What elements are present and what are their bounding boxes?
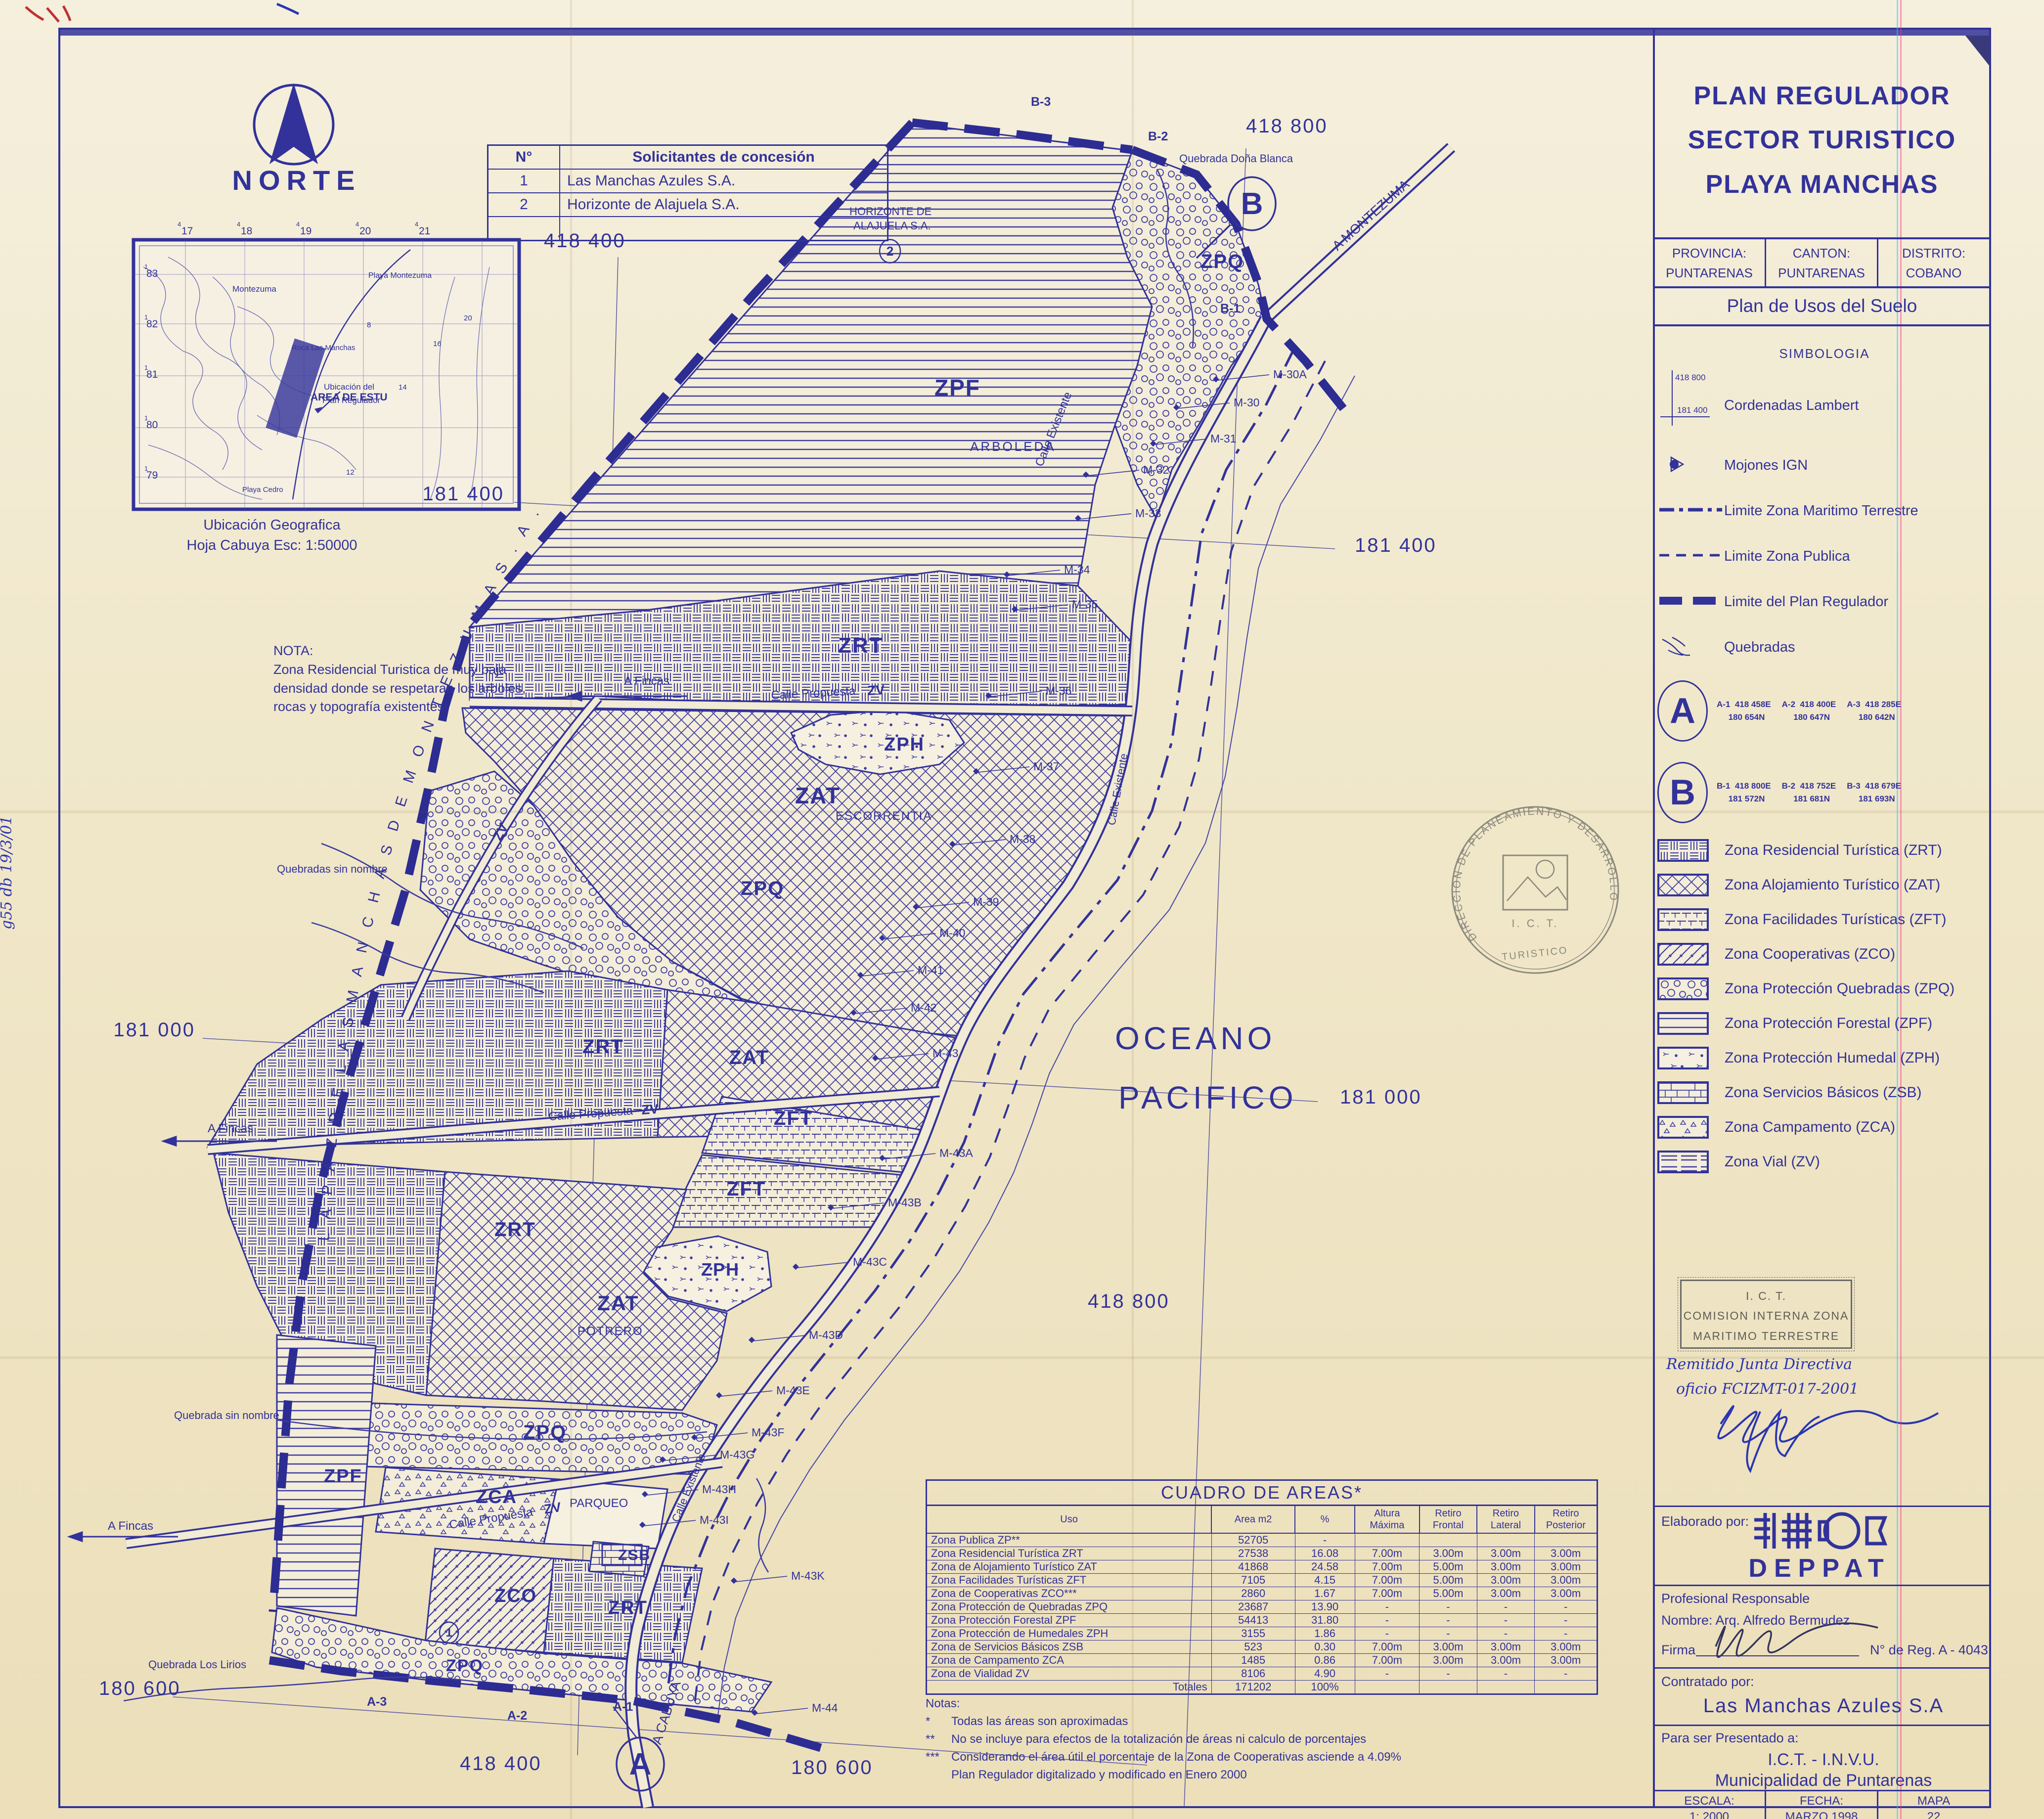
registration-number: N° de Reg. A - 4043 xyxy=(1870,1642,1988,1658)
inset-tick-sup: 4 xyxy=(296,221,300,228)
title-line2: SECTOR TURISTICO xyxy=(1661,118,1983,162)
areas-column-header: % xyxy=(1295,1506,1355,1534)
areas-cell xyxy=(1535,1681,1598,1694)
scale-date-row: ESCALA: 1: 2000 FECHA: MARZO 1998 MAPA 2… xyxy=(1654,1790,1989,1819)
legend-zone-label: Zona Cooperativas (ZCO) xyxy=(1725,946,1895,963)
dashdot-icon xyxy=(1657,499,1724,523)
escala-label: ESCALA: xyxy=(1654,1793,1765,1809)
areas-cell: 3.00m xyxy=(1420,1641,1477,1654)
margin-handwriting: g55 db 19/3/01 xyxy=(0,815,15,930)
zone-code-label: ZRT xyxy=(608,1597,648,1618)
feature-label: A Fincas xyxy=(208,1122,253,1135)
inset-top-tick: 19 xyxy=(300,225,311,237)
areas-cell: - xyxy=(1355,1614,1420,1627)
ict-stamp-line3: MARITIMO TERRESTRE xyxy=(1682,1326,1851,1346)
areas-table-title: CUADRO DE AREAS* xyxy=(927,1480,1598,1506)
legend: 418 800 181 400 Cordenadas Lambert Mojon… xyxy=(1657,368,1990,1179)
footnote: **No se incluye para efectos de la total… xyxy=(926,1730,1618,1748)
areas-table: CUADRO DE AREAS* UsoArea m2%AlturaMáxima… xyxy=(926,1479,1598,1695)
areas-cell: 3.00m xyxy=(1535,1587,1598,1600)
legend-zone-item: Zona Residencial Turística (ZRT) xyxy=(1657,833,1990,868)
legend-zone-label: Zona Protección Quebradas (ZPQ) xyxy=(1725,980,1955,997)
legend-zone-item: Zona Vial (ZV) xyxy=(1657,1145,1990,1179)
zone-pattern-swatch xyxy=(1657,1081,1709,1104)
zone-code-label: ZPH xyxy=(701,1259,740,1280)
zone-code-label: ZPF xyxy=(324,1466,362,1487)
inset-caption-line2: Hoja Cabuya Esc: 1:50000 xyxy=(163,535,381,556)
areas-cell: Zona Protección Forestal ZPF xyxy=(927,1614,1212,1627)
mojon-label: M-37 xyxy=(1033,760,1059,773)
areas-cell: - xyxy=(1535,1667,1598,1681)
areas-cell: - xyxy=(1477,1667,1535,1681)
mojon-label: M-43I xyxy=(700,1513,729,1526)
mojon-label: M-43D xyxy=(809,1329,843,1341)
legend-zone-label: Zona Protección Forestal (ZPF) xyxy=(1725,1015,1932,1032)
circled-marker-letter: A xyxy=(629,1747,652,1781)
feature-label: POTRERO xyxy=(578,1325,643,1338)
applicant-row xyxy=(488,217,888,241)
legend-zone-item: Zona Protección Forestal (ZPF) xyxy=(1657,1006,1990,1041)
areas-cell: 0.30 xyxy=(1295,1641,1355,1654)
inset-caption-line1: Ubicación Geografica xyxy=(163,515,381,535)
title-line1: PLAN REGULADOR xyxy=(1661,74,1983,118)
legend-zone-label: Zona Residencial Turística (ZRT) xyxy=(1725,842,1942,859)
zone-code-label: ZCO xyxy=(494,1586,537,1606)
areas-cell: 5.00m xyxy=(1420,1574,1477,1587)
deppat-logo-icon xyxy=(1750,1509,1894,1553)
handwritten-note-line2: oficio FCIZMT-017-2001 xyxy=(1676,1380,1859,1398)
areas-cell: 3.00m xyxy=(1420,1547,1477,1560)
legend-zone-item: Zona Campamento (ZCA) xyxy=(1657,1110,1990,1145)
boundary-point-label: A-3 xyxy=(367,1695,387,1709)
sheet-title: PLAN REGULADOR SECTOR TURISTICO PLAYA MA… xyxy=(1661,74,1983,207)
areas-cell: 41868 xyxy=(1211,1560,1295,1574)
circled-marker-letter: 2 xyxy=(887,244,893,259)
areas-cell: Zona Facilidades Turísticas ZFT xyxy=(927,1574,1212,1587)
feature-label: ARBOLEDA xyxy=(970,439,1056,454)
mojon-label: M-43B xyxy=(888,1196,922,1209)
applicants-num-header: N° xyxy=(488,145,560,170)
professional-name: Nombre: Arq. Alfredo Bermudez xyxy=(1661,1613,1850,1628)
inset-feature-label: Roca Las Manchas xyxy=(292,344,355,352)
ict-stamp-line2: COMISION INTERNA ZONA xyxy=(1682,1306,1851,1326)
areas-cell: 3.00m xyxy=(1477,1547,1535,1560)
legend-point-group-A: AA-1 418 458E 180 654NA-2 418 400E 180 6… xyxy=(1657,670,1990,752)
client-name: Las Manchas Azules S.A xyxy=(1657,1695,1990,1717)
areas-cell: - xyxy=(1355,1627,1420,1641)
mojon-icon xyxy=(1657,453,1724,478)
deppat-name: DEPPAT xyxy=(1671,1553,1968,1583)
areas-cell: 3.00m xyxy=(1420,1654,1477,1667)
svg-text:OCEANO: OCEANO xyxy=(1115,1020,1276,1056)
road-label: ZV xyxy=(543,1500,562,1517)
fecha-label: FECHA: xyxy=(1766,1793,1877,1809)
inset-feature-label: Montezuma xyxy=(232,284,276,294)
boundary-point-label: B-3 xyxy=(1031,95,1051,109)
circled-letter-B: B xyxy=(1657,762,1708,823)
mojon-label: M-43F xyxy=(752,1426,784,1439)
boundary-point-label: A-2 xyxy=(507,1709,527,1723)
inset-location-map xyxy=(133,240,519,509)
mapa-cell: MAPA 22 xyxy=(1877,1791,1989,1819)
zone-code-label: ZAT xyxy=(597,1291,639,1315)
legend-item: Limite del Plan Regulador xyxy=(1657,579,1990,624)
feature-label: Quebrada sin nombre xyxy=(174,1409,279,1421)
areas-cell: 3.00m xyxy=(1535,1641,1598,1654)
province-label: PROVINCIA: xyxy=(1654,243,1765,263)
district-cell: DISTRITO: COBANO xyxy=(1877,239,1989,286)
areas-cell xyxy=(1355,1533,1420,1547)
areas-cell: - xyxy=(1535,1600,1598,1614)
legend-zone-label: Zona Vial (ZV) xyxy=(1725,1154,1820,1170)
footnote-text: Todas las áreas son aproximadas xyxy=(951,1713,1128,1730)
legend-item-label: Mojones IGN xyxy=(1724,457,1808,474)
zone-pattern-swatch xyxy=(1657,1047,1709,1069)
point-coordinates: A-2 418 400E 180 647N xyxy=(1782,698,1836,723)
areas-cell: - xyxy=(1355,1600,1420,1614)
areas-cell xyxy=(1420,1533,1477,1547)
elaborado-label: Elaborado por: xyxy=(1661,1514,1749,1529)
mojon-label: M-40 xyxy=(939,927,965,939)
note-line: densidad donde se respetaran los arboles… xyxy=(273,679,600,698)
areas-column-header: RetiroPosterior xyxy=(1535,1506,1598,1534)
heavy-icon xyxy=(1657,590,1724,614)
ict-stamp-line1: I. C. T. xyxy=(1682,1286,1851,1306)
presentado-to-2: Municipalidad de Puntarenas xyxy=(1657,1771,1990,1790)
footnote-text: Considerando el área útil el porcentaje … xyxy=(951,1748,1401,1766)
zone-pattern-swatch xyxy=(1657,977,1709,1000)
fecha-value: MARZO 1998 xyxy=(1766,1809,1877,1819)
areas-cell: 3.00m xyxy=(1477,1641,1535,1654)
mojon-label: M-42 xyxy=(911,1001,936,1014)
legend-heading: SIMBOLOGIA xyxy=(1716,346,1933,361)
mojon-label: M-36 xyxy=(1046,684,1071,697)
divider xyxy=(1654,1585,1989,1586)
areas-cell: - xyxy=(1420,1627,1477,1641)
areas-cell: 8106 xyxy=(1211,1667,1295,1681)
grid-coordinate-label: 418 400 xyxy=(460,1753,542,1775)
feature-label: Quebrada Los Lirios xyxy=(148,1658,246,1671)
areas-cell: Zona de Servicios Básicos ZSB xyxy=(927,1641,1212,1654)
areas-cell: - xyxy=(1477,1600,1535,1614)
lambert-coords-icon: 418 800 181 400 xyxy=(1657,367,1724,444)
areas-row: Zona de Vialidad ZV81064.90---- xyxy=(927,1667,1598,1681)
areas-cell: 7105 xyxy=(1211,1574,1295,1587)
inset-top-tick: 21 xyxy=(419,225,430,237)
inset-tick-sup: 4 xyxy=(237,221,240,228)
areas-cell: - xyxy=(1295,1533,1355,1547)
zone-code-label: ZRT xyxy=(494,1219,536,1241)
inset-top-tick: 20 xyxy=(359,225,371,237)
mojon-label: M-35 xyxy=(1072,598,1098,611)
legend-zone-item: Zona Protección Quebradas (ZPQ) xyxy=(1657,972,1990,1006)
map-note: NOTA: Zona Residencial Turistica de muy … xyxy=(273,642,600,716)
inset-depth-number: 20 xyxy=(464,314,472,322)
areas-cell xyxy=(1477,1533,1535,1547)
divider xyxy=(1654,1506,1989,1507)
areas-row: Zona de Cooperativas ZCO***28601.677.00m… xyxy=(927,1587,1598,1600)
grid-coordinate-label: 181 000 xyxy=(113,1019,195,1041)
mojon-label: M-41 xyxy=(918,964,943,976)
mojon-label: M-39 xyxy=(973,895,999,908)
point-coordinates: A-3 418 285E 180 642N xyxy=(1847,698,1901,723)
areas-cell: 4.15 xyxy=(1295,1574,1355,1587)
legend-item-label: Limite del Plan Regulador xyxy=(1724,594,1888,610)
zone-code-label: ZPQ xyxy=(1200,251,1244,272)
legend-item-label: Limite Zona Maritimo Terrestre xyxy=(1724,503,1918,519)
zone-code-label: ZFT xyxy=(774,1108,813,1129)
zone-code-label: ZCA xyxy=(476,1487,517,1508)
areas-cell: Zona de Cooperativas ZCO*** xyxy=(927,1587,1212,1600)
zone-code-label: ZAT xyxy=(729,1047,769,1068)
point-coordinates: B-2 418 752E 181 681N xyxy=(1782,780,1836,805)
fecha-cell: FECHA: MARZO 1998 xyxy=(1765,1791,1877,1819)
zone-pattern-swatch xyxy=(1657,1012,1709,1035)
sheet-subtitle: Plan de Usos del Suelo xyxy=(1661,296,1983,316)
footnote-mark: *** xyxy=(926,1748,951,1766)
mojon-label: M-43 xyxy=(933,1047,958,1060)
dashed-icon xyxy=(1657,544,1724,569)
applicants-table: N° Solicitantes de concesión 1Las Mancha… xyxy=(487,144,889,241)
north-label: NORTE xyxy=(205,164,389,196)
legend-zone-item: Zona Protección Humedal (ZPH) xyxy=(1657,1041,1990,1075)
grid-coordinate-label: 181 400 xyxy=(1355,534,1437,556)
district-value: COBANO xyxy=(1878,263,1989,283)
grid-coordinate-label: 418 800 xyxy=(1088,1290,1170,1312)
feature-label: Quebradas sin nombre xyxy=(277,863,388,875)
legend-item-label: Limite Zona Publica xyxy=(1724,548,1850,565)
circled-letter-A: A xyxy=(1657,680,1708,742)
areas-cell: 2860 xyxy=(1211,1587,1295,1600)
point-coordinates: A-1 418 458E 180 654N xyxy=(1717,698,1771,723)
areas-row: Zona Protección Forestal ZPF5441331.80--… xyxy=(927,1614,1598,1627)
areas-cell xyxy=(1420,1681,1477,1694)
road-label: ZV xyxy=(867,682,885,698)
zone-code-label: ZSB xyxy=(618,1547,651,1563)
jurisdiction-row: PROVINCIA: PUNTARENAS CANTON: PUNTARENAS… xyxy=(1654,237,1989,288)
inset-tick-sup: 4 xyxy=(415,221,418,228)
areas-total-label: Totales xyxy=(927,1681,1212,1694)
areas-column-header: AlturaMáxima xyxy=(1355,1506,1420,1534)
areas-cell: 52705 xyxy=(1211,1533,1295,1547)
areas-cell: 1485 xyxy=(1211,1654,1295,1667)
footnote-mark: * xyxy=(926,1713,951,1730)
note-title: NOTA: xyxy=(273,642,600,661)
areas-cell: 3.00m xyxy=(1535,1654,1598,1667)
areas-cell: 5.00m xyxy=(1420,1560,1477,1574)
zone-parqueo xyxy=(544,1479,667,1549)
mojon-label: M-32 xyxy=(1143,463,1169,476)
legend-item: Mojones IGN xyxy=(1657,443,1990,488)
inset-caption: Ubicación Geografica Hoja Cabuya Esc: 1:… xyxy=(163,515,381,555)
areas-cell: 27538 xyxy=(1211,1547,1295,1560)
point-coordinates: B-3 418 679E 181 693N xyxy=(1847,780,1901,805)
inset-left-tick: 83 xyxy=(146,268,158,279)
footnote-text: Plan Regulador digitalizado y modificado… xyxy=(951,1766,1247,1784)
presentado-label: Para ser Presentado a: xyxy=(1661,1730,1799,1746)
footnote-text: No se incluye para efectos de la totaliz… xyxy=(951,1730,1366,1748)
areas-cell: 3.00m xyxy=(1477,1574,1535,1587)
province-value: PUNTARENAS xyxy=(1654,263,1765,283)
areas-cell: - xyxy=(1420,1667,1477,1681)
areas-cell xyxy=(1355,1681,1420,1694)
divider xyxy=(1654,1667,1989,1669)
circled-marker-letter: B xyxy=(1241,187,1263,221)
inset-feature-label: Ubicación del xyxy=(324,382,374,392)
point-coordinates: B-1 418 800E 181 572N xyxy=(1717,780,1771,805)
legend-zone-item: Zona Cooperativas (ZCO) xyxy=(1657,937,1990,972)
legend-zone-label: Zona Campamento (ZCA) xyxy=(1725,1119,1895,1136)
areas-column-header: RetiroLateral xyxy=(1477,1506,1535,1534)
areas-cell: - xyxy=(1477,1614,1535,1627)
legend-item-label: Quebradas xyxy=(1724,639,1795,656)
note-line: rocas y topografía existentes. xyxy=(273,698,600,716)
legend-zone-item: Zona Alojamiento Turístico (ZAT) xyxy=(1657,868,1990,902)
applicant-name: Las Manchas Azules S.A. xyxy=(560,169,888,193)
footnote: ***Considerando el área útil el porcenta… xyxy=(926,1748,1618,1766)
zone-code-label: ZPQ xyxy=(523,1421,567,1443)
mojon-label: M-43A xyxy=(939,1147,973,1159)
areas-cell: 16.08 xyxy=(1295,1547,1355,1560)
svg-text:418 800: 418 800 xyxy=(1675,373,1705,382)
areas-row: Zona de Campamento ZCA14850.867.00m3.00m… xyxy=(927,1654,1598,1667)
applicants-header: Solicitantes de concesión xyxy=(560,145,888,170)
mojon-label: M-30 xyxy=(1234,396,1259,409)
inset-depth-number: 8 xyxy=(367,321,371,329)
mojon-label: M-33 xyxy=(1135,507,1161,520)
inset-top-tick: 18 xyxy=(241,225,252,237)
areas-cell: 7.00m xyxy=(1355,1587,1420,1600)
inset-left-tick: 82 xyxy=(146,318,158,330)
grid-coordinate-label: 181 000 xyxy=(1340,1086,1422,1108)
divider xyxy=(1654,324,1989,326)
legend-item: Limite Zona Maritimo Terrestre xyxy=(1657,488,1990,533)
areas-cell: 4.90 xyxy=(1295,1667,1355,1681)
zone-pattern-swatch xyxy=(1657,839,1709,862)
zone-code-label: ZRT xyxy=(838,633,884,658)
mojon-label: M-43E xyxy=(776,1384,810,1397)
zone-code-label: ZPQ xyxy=(446,1656,484,1675)
applicant-name: Horizonte de Alajuela S.A. xyxy=(560,193,888,217)
areas-cell: - xyxy=(1477,1627,1535,1641)
footnotes: Notas: *Todas las áreas son aproximadas*… xyxy=(926,1695,1618,1784)
legend-zone-label: Zona Facilidades Turísticas (ZFT) xyxy=(1725,911,1946,928)
areas-cell: 3.00m xyxy=(1535,1560,1598,1574)
areas-cell: 1.86 xyxy=(1295,1627,1355,1641)
mojon-label: M-43G xyxy=(720,1448,755,1461)
areas-row: Zona de Servicios Básicos ZSB5230.307.00… xyxy=(927,1641,1598,1654)
note-line: Zona Residencial Turistica de muy baja xyxy=(273,661,600,679)
zone-code-label: ZRT xyxy=(582,1036,624,1058)
legend-item: Limite Zona Publica xyxy=(1657,533,1990,579)
areas-cell: 3155 xyxy=(1211,1627,1295,1641)
areas-cell: 7.00m xyxy=(1355,1547,1420,1560)
feature-label: Quebrada Doña Blanca xyxy=(1179,152,1293,165)
applicant-row: 2Horizonte de Alajuela S.A. xyxy=(488,193,888,217)
zone-code-label: ZPF xyxy=(934,375,980,400)
areas-total-area: 171202 xyxy=(1211,1681,1295,1694)
canton-value: PUNTARENAS xyxy=(1766,263,1877,283)
title-line3: PLAYA MANCHAS xyxy=(1661,163,1983,207)
areas-cell: 13.90 xyxy=(1295,1600,1355,1614)
scanned-plan-sheet: L A P A Z D E L A S M A N C H A S D E M … xyxy=(0,0,2044,1819)
areas-cell: - xyxy=(1420,1600,1477,1614)
inset-tick-sup: 4 xyxy=(178,221,181,228)
legend-zone-label: Zona Servicios Básicos (ZSB) xyxy=(1725,1084,1921,1101)
inset-depth-number: 14 xyxy=(399,383,407,392)
legend-zone-item: Zona Facilidades Turísticas (ZFT) xyxy=(1657,902,1990,937)
areas-cell xyxy=(1535,1533,1598,1547)
grid-coordinate-label: 418 800 xyxy=(1246,115,1328,137)
areas-cell: 24.58 xyxy=(1295,1560,1355,1574)
zone-pattern-swatch xyxy=(1657,908,1709,931)
legend-zone-label: Zona Protección Humedal (ZPH) xyxy=(1725,1050,1940,1066)
grid-coordinate-label: 180 600 xyxy=(791,1757,873,1778)
footnote-mark: ** xyxy=(926,1730,951,1748)
areas-cell: - xyxy=(1355,1667,1420,1681)
feature-label: PARQUEO xyxy=(570,1497,628,1510)
feature-label: A Fincas xyxy=(624,674,669,688)
fold-crease xyxy=(570,0,573,1819)
inset-left-tick: 80 xyxy=(146,419,158,431)
areas-total-row: Totales171202100% xyxy=(927,1681,1598,1694)
svg-text:I. C. T.: I. C. T. xyxy=(1511,917,1558,930)
areas-cell: 3.00m xyxy=(1535,1547,1598,1560)
areas-row: Zona de Alojamiento Turístico ZAT4186824… xyxy=(927,1560,1598,1574)
district-label: DISTRITO: xyxy=(1878,243,1989,263)
areas-cell: 523 xyxy=(1211,1641,1295,1654)
handwritten-note-line1: Remitido Junta Directiva xyxy=(1666,1356,1852,1373)
inset-top-tick: 17 xyxy=(181,225,193,237)
areas-cell: 3.00m xyxy=(1477,1654,1535,1667)
areas-row: Zona Publica ZP**52705- xyxy=(927,1533,1598,1547)
applicant-name xyxy=(560,217,888,241)
areas-cell: 7.00m xyxy=(1355,1574,1420,1587)
inset-feature-label: AREA DE ESTU xyxy=(311,392,388,403)
canton-label: CANTON: xyxy=(1766,243,1877,263)
mojon-label: M-43C xyxy=(853,1255,887,1268)
inset-depth-number: 12 xyxy=(346,468,355,477)
ict-stamp-box: I. C. T. COMISION INTERNA ZONA MARITIMO … xyxy=(1680,1280,1852,1349)
mojon-label: M-34 xyxy=(1064,563,1090,576)
zone-pattern-swatch xyxy=(1657,1151,1709,1173)
mojon-label: M-31 xyxy=(1210,432,1236,445)
circled-marker-letter: 1 xyxy=(445,1626,452,1640)
footnote-mark xyxy=(926,1766,951,1784)
boundary-point-label: B-1 xyxy=(1220,302,1240,315)
areas-cell: 23687 xyxy=(1211,1600,1295,1614)
footnote: *Todas las áreas son aproximadas xyxy=(926,1713,1618,1730)
applicant-number: 1 xyxy=(488,169,560,193)
areas-cell: 3.00m xyxy=(1477,1560,1535,1574)
zone-pattern-swatch xyxy=(1657,943,1709,966)
presentado-to-1: I.C.T. - I.N.V.U. xyxy=(1657,1750,1990,1770)
areas-cell: Zona Publica ZP** xyxy=(927,1533,1212,1547)
areas-cell: 3.00m xyxy=(1535,1574,1598,1587)
canton-cell: CANTON: PUNTARENAS xyxy=(1765,239,1877,286)
svg-text:PACIFICO: PACIFICO xyxy=(1118,1080,1297,1115)
areas-cell: Zona de Alojamiento Turístico ZAT xyxy=(927,1560,1212,1574)
legend-coords-item: 418 800 181 400 Cordenadas Lambert xyxy=(1657,368,1990,443)
legend-item: Quebradas xyxy=(1657,624,1990,670)
boundary-point-label: B-2 xyxy=(1148,130,1168,143)
grid-coordinate-label: 180 600 xyxy=(99,1678,181,1699)
areas-total-pct: 100% xyxy=(1295,1681,1355,1694)
mojon-label: M-43K xyxy=(791,1569,825,1582)
footnote: Plan Regulador digitalizado y modificado… xyxy=(926,1766,1618,1784)
zone-code-label: ZPQ xyxy=(741,878,784,899)
areas-cell: 31.80 xyxy=(1295,1614,1355,1627)
